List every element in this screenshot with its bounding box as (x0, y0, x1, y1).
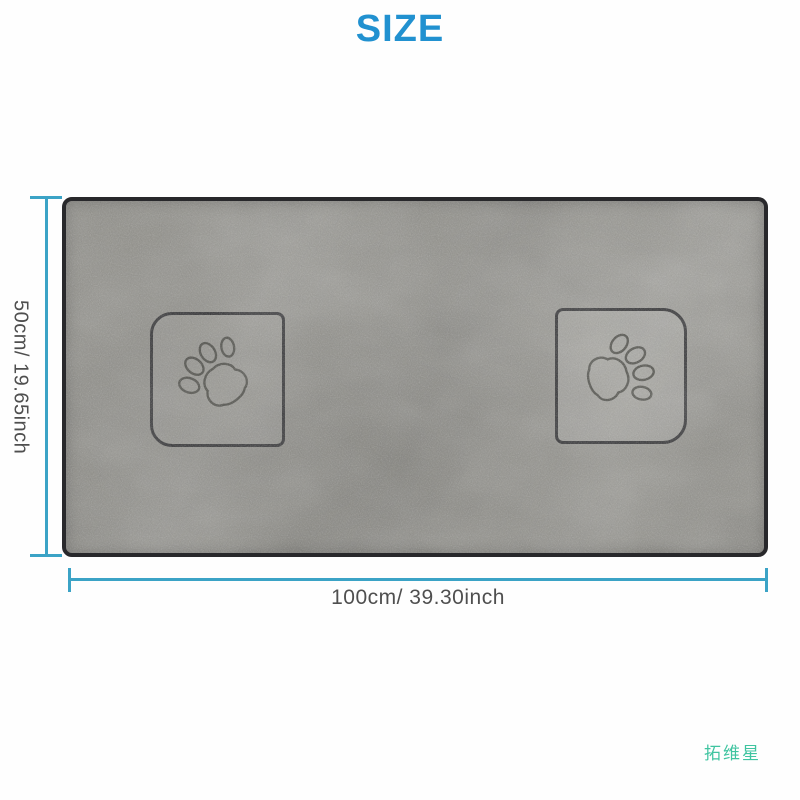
towel-pocket-left (150, 312, 285, 447)
paw-print-icon (558, 315, 678, 435)
brand-watermark: 拓维星 (704, 739, 761, 764)
towel-pocket-right (555, 308, 687, 444)
height-dimension-line (45, 196, 48, 557)
width-dimension-label: 100cm/ 39.30inch (68, 586, 768, 610)
width-dimension-line (68, 578, 768, 581)
size-diagram: SIZE (0, 0, 800, 800)
height-dimension-label: 50cm/ 19.65inch (9, 300, 32, 454)
height-dimension: 50cm/ 19.65inch (2, 197, 38, 558)
towel-image (62, 197, 768, 557)
paw-print-icon (152, 310, 285, 443)
page-title: SIZE (0, 8, 800, 51)
